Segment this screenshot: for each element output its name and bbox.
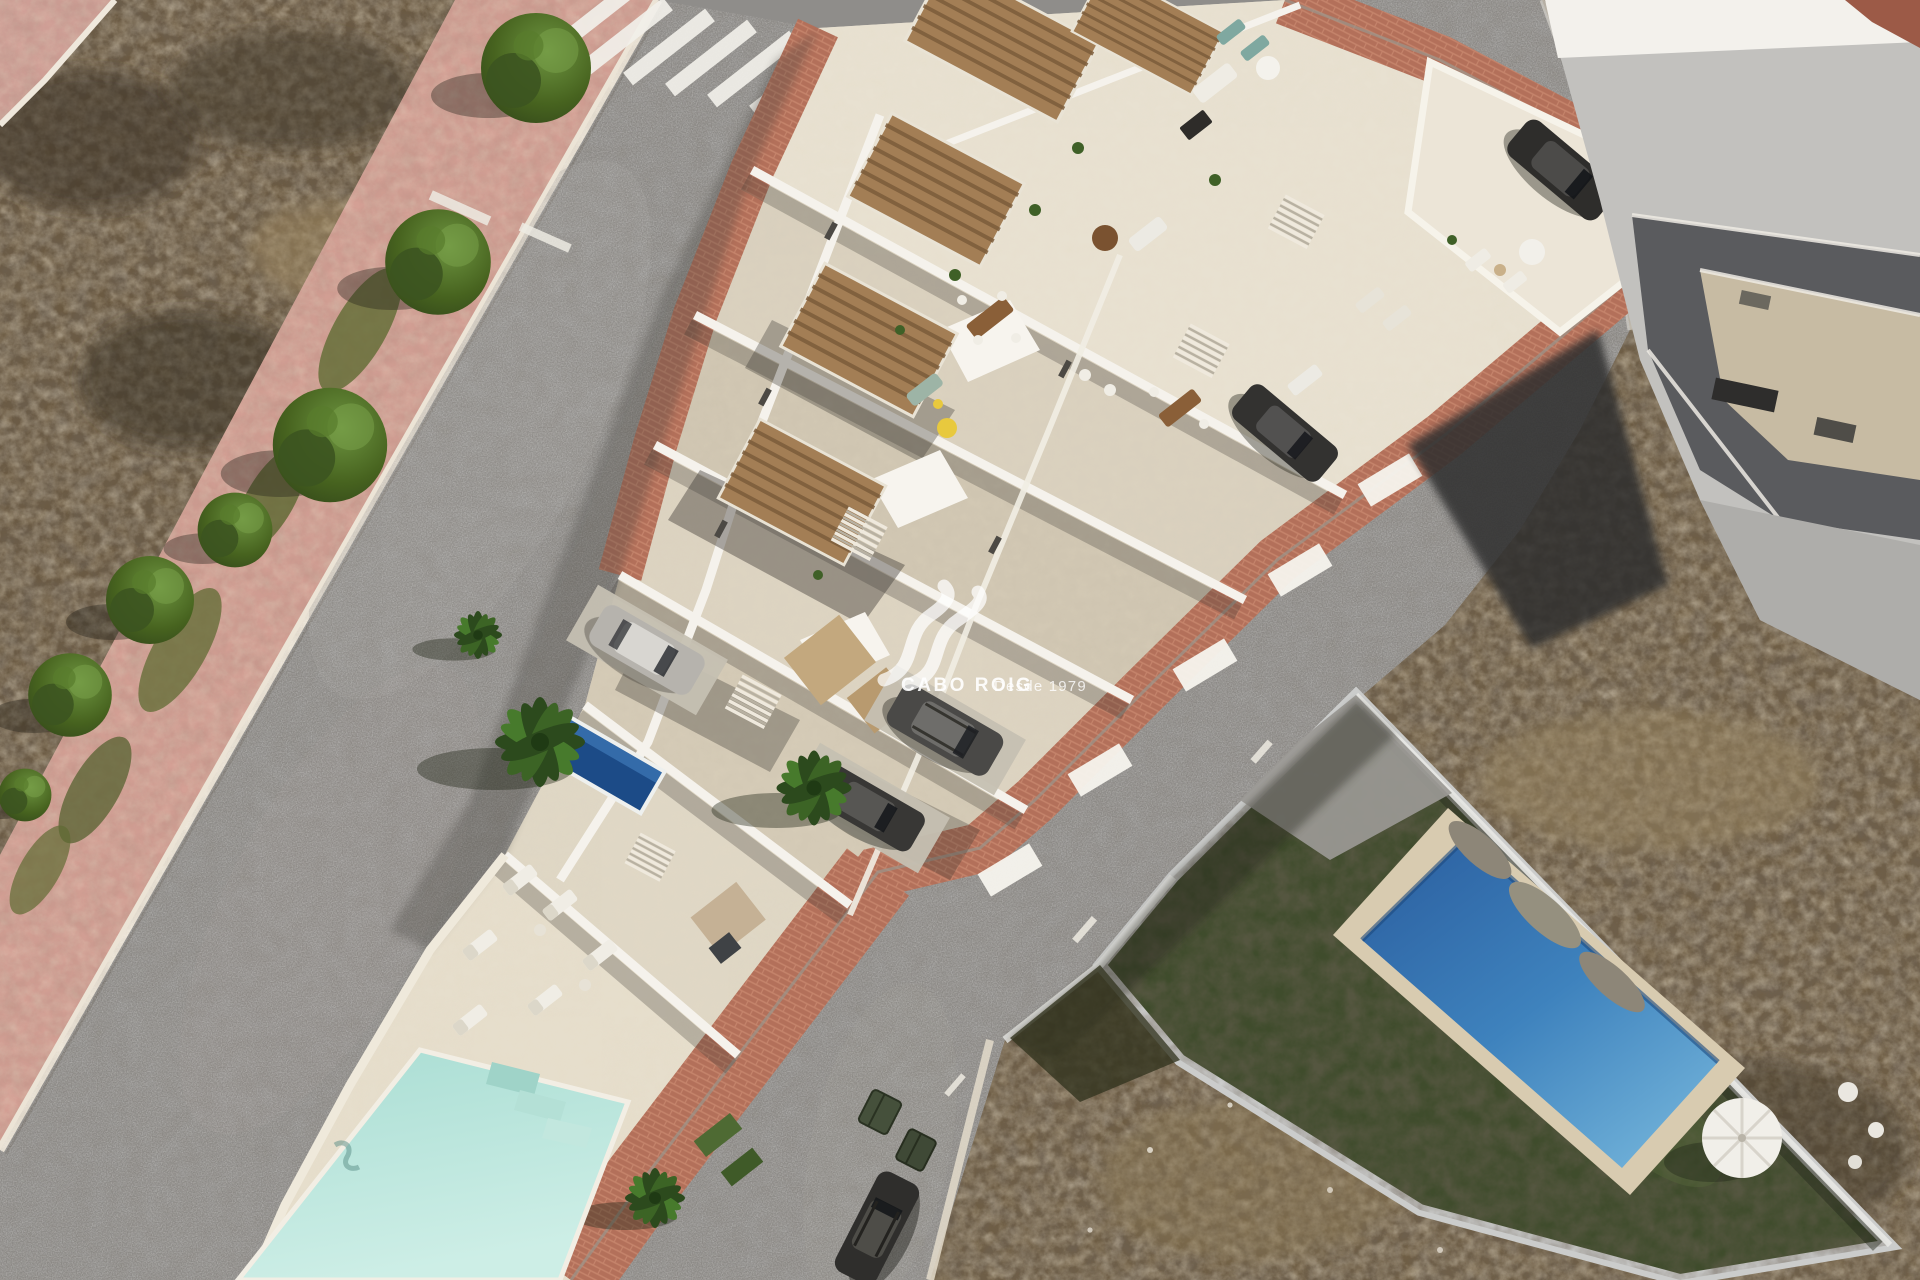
watermark-tagline: Desde 1979 [994,678,1087,695]
render-canvas: CABO ROIG Desde 1979 [0,0,1920,1280]
aerial-render-image: CABO ROIG Desde 1979 [0,0,1920,1280]
